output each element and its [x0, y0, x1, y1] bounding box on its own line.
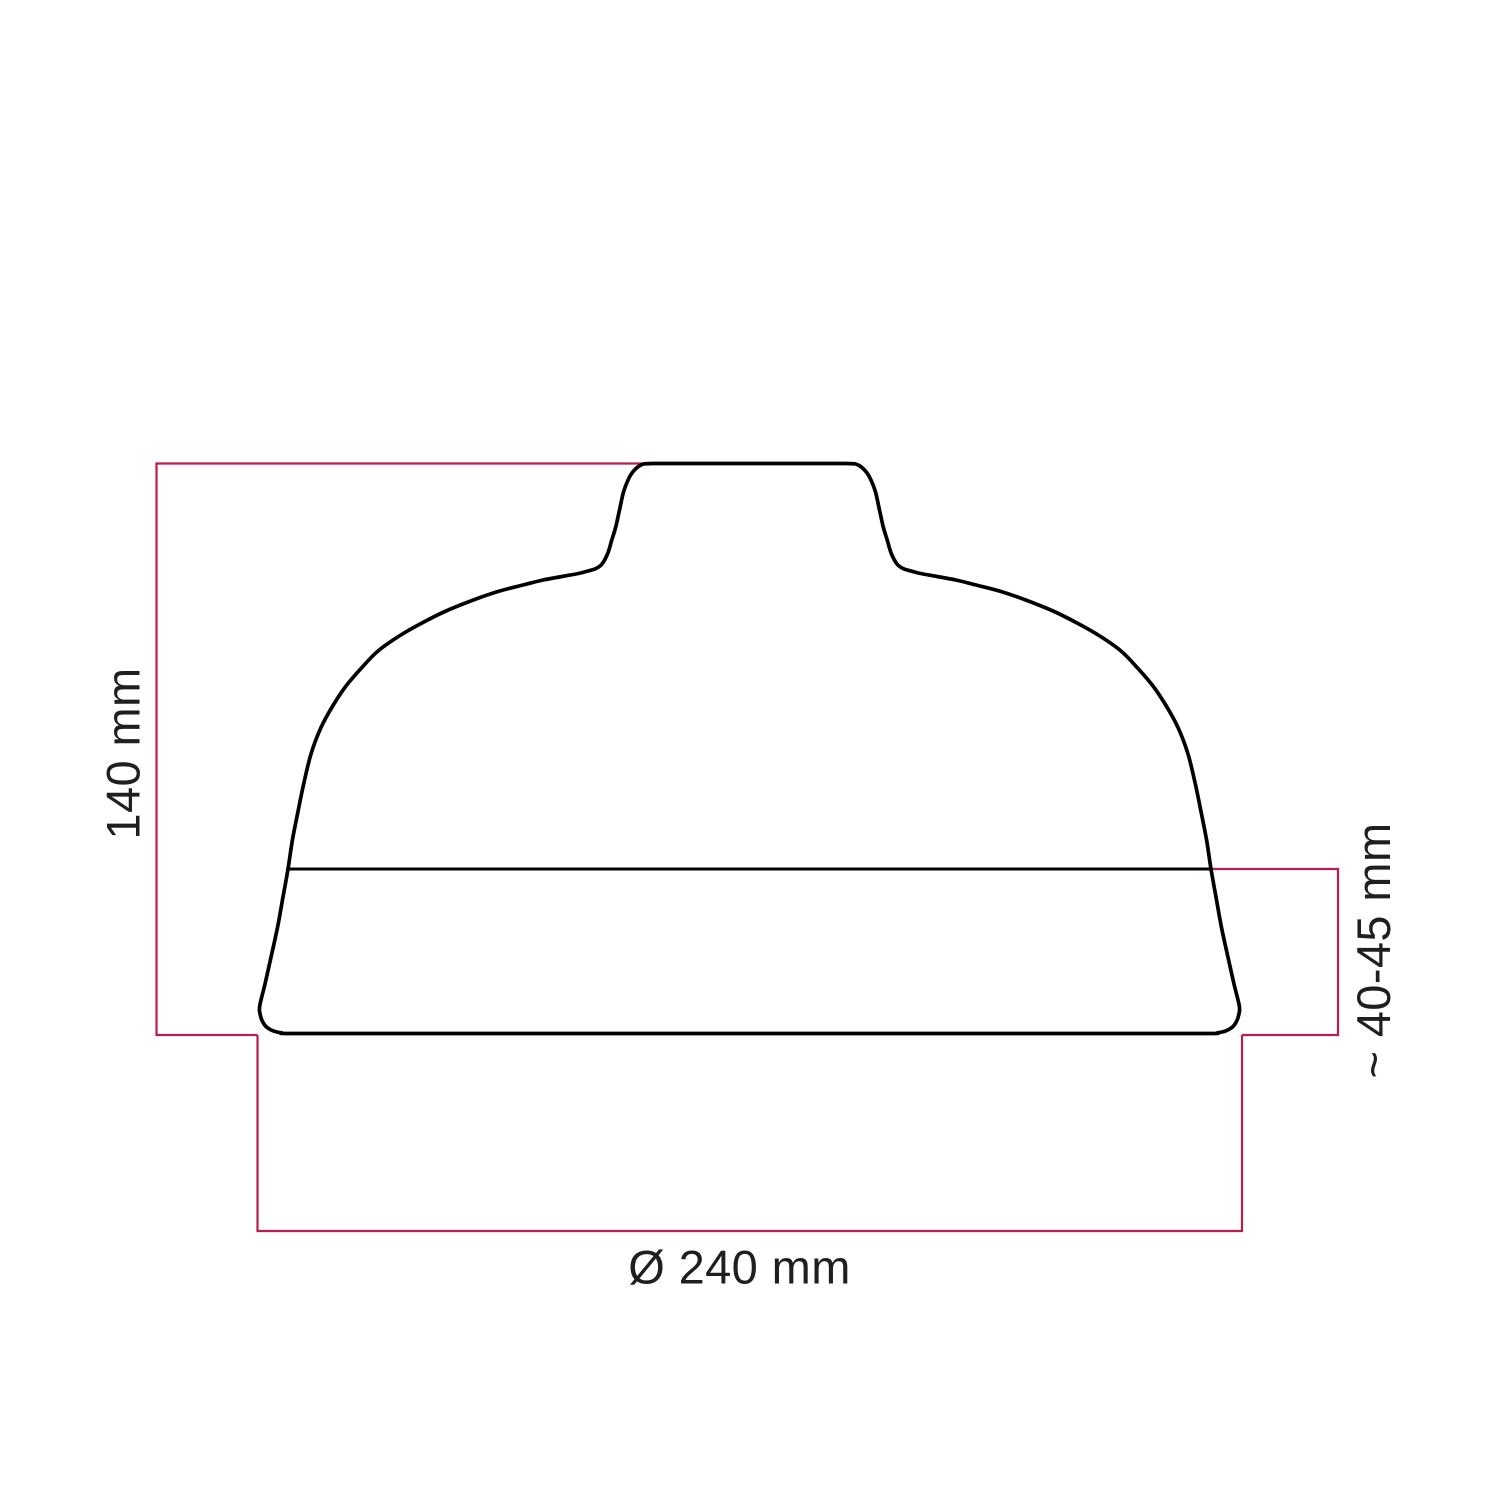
svg-text:~ 40-45 mm: ~ 40-45 mm [1347, 822, 1400, 1078]
svg-text:Ø 240 mm: Ø 240 mm [628, 1241, 851, 1294]
svg-text:140 mm: 140 mm [97, 667, 150, 839]
